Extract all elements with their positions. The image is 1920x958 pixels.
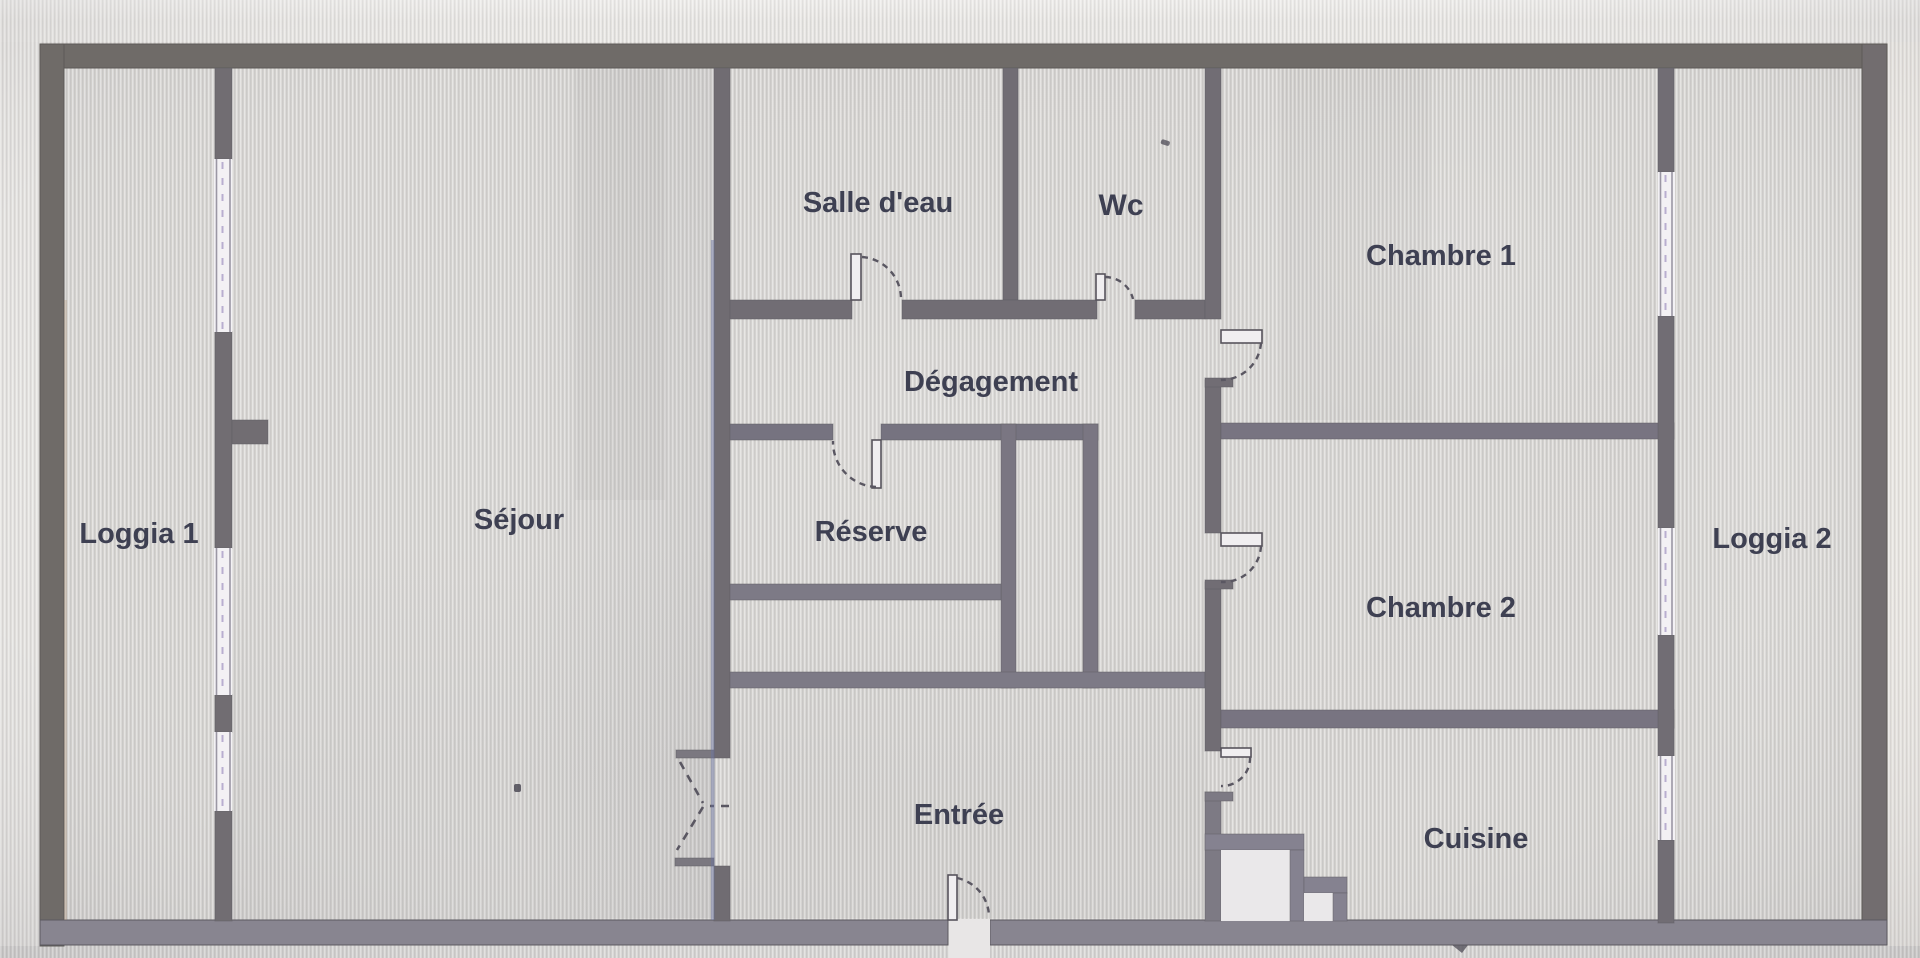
svg-text:Réserve: Réserve bbox=[815, 516, 928, 548]
svg-text:Loggia 1: Loggia 1 bbox=[79, 518, 198, 550]
svg-text:Dégagement: Dégagement bbox=[904, 366, 1078, 398]
svg-text:Entrée: Entrée bbox=[914, 799, 1004, 831]
svg-text:Wc: Wc bbox=[1099, 189, 1144, 222]
svg-text:Séjour: Séjour bbox=[474, 504, 564, 536]
svg-text:Cuisine: Cuisine bbox=[1424, 823, 1529, 855]
svg-text:Chambre 1: Chambre 1 bbox=[1366, 240, 1516, 272]
svg-text:Loggia 2: Loggia 2 bbox=[1712, 523, 1831, 555]
svg-text:Chambre 2: Chambre 2 bbox=[1366, 592, 1516, 624]
svg-text:Salle d'eau: Salle d'eau bbox=[803, 187, 953, 219]
